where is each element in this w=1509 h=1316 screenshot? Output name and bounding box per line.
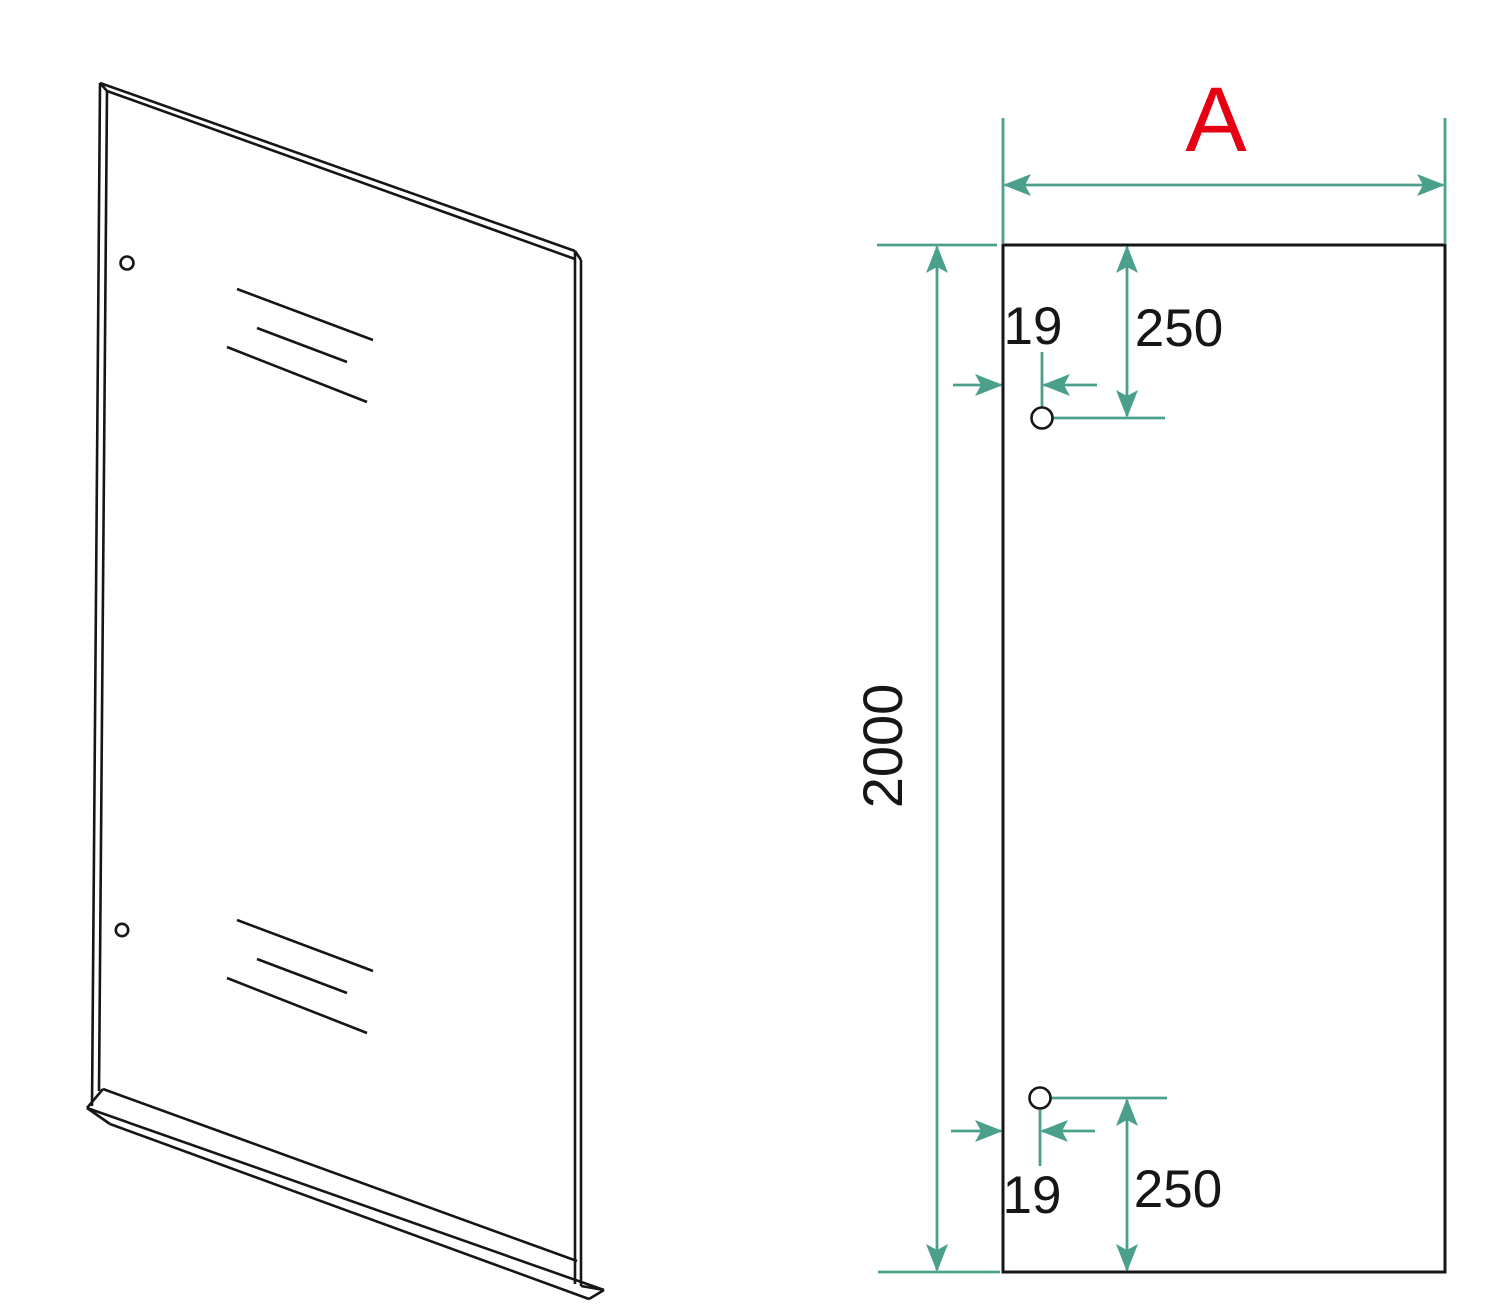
rail-top-edge <box>103 1089 577 1261</box>
reflection-line <box>237 289 373 340</box>
iso-top-edge-inner <box>107 91 575 259</box>
iso-hole-top <box>121 257 134 270</box>
reflection-line <box>227 978 367 1033</box>
label-bottom-250: 250 <box>1134 1160 1222 1219</box>
label-width-a: A <box>1185 69 1247 171</box>
front-hole-top <box>1032 408 1053 429</box>
rail-bottom-edge <box>110 1124 589 1299</box>
dimension-layer <box>877 118 1445 1272</box>
front-hole-bottom <box>1030 1088 1051 1109</box>
rail-right-cap <box>589 1290 604 1299</box>
iso-reflection-lines <box>227 289 373 1033</box>
iso-top-edge-outer <box>100 83 575 251</box>
iso-hole-bottom <box>116 924 128 936</box>
iso-left-edge-inner <box>99 91 107 1091</box>
reflection-line <box>257 328 347 362</box>
iso-view <box>87 83 604 1299</box>
label-top-19: 19 <box>1004 297 1063 356</box>
iso-left-edge-outer <box>92 83 100 1106</box>
label-bottom-19: 19 <box>1003 1166 1062 1225</box>
reflection-line <box>257 959 347 993</box>
dim-bottom-19 <box>951 1053 1095 1166</box>
dimension-labels: A 2000 19 250 19 250 <box>851 69 1247 1225</box>
technical-drawing: A 2000 19 250 19 250 <box>0 0 1509 1316</box>
drawing-canvas: A 2000 19 250 19 250 <box>0 0 1509 1316</box>
label-top-250: 250 <box>1135 299 1223 358</box>
rail-left-cap-upper <box>87 1089 103 1108</box>
iso-glass-outline <box>92 83 581 1286</box>
dim-top-19 <box>953 350 1097 417</box>
iso-bottom-rail <box>87 1089 604 1299</box>
rail-mid-edge <box>87 1108 604 1290</box>
front-view <box>1003 245 1445 1272</box>
label-height-2000: 2000 <box>851 684 914 809</box>
reflection-line <box>237 920 373 971</box>
reflection-line <box>227 347 367 402</box>
front-panel-outline <box>1003 245 1445 1272</box>
